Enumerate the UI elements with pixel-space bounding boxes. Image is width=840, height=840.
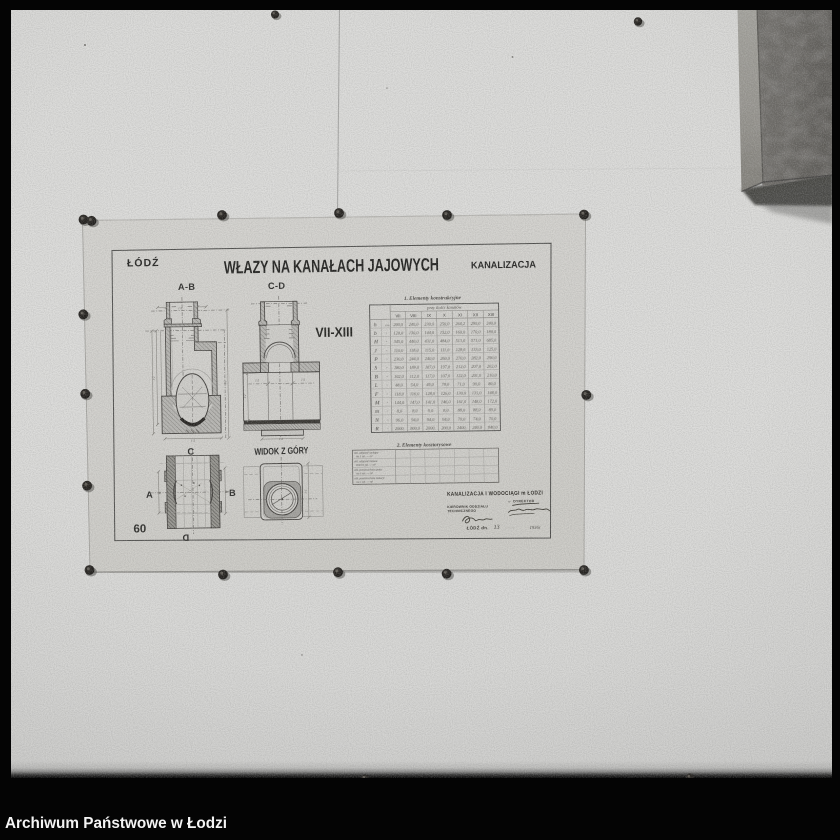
svg-text:Archiwum Państwowe w Łodzi: Archiwum Państwowe w Łodzi	[5, 815, 227, 832]
